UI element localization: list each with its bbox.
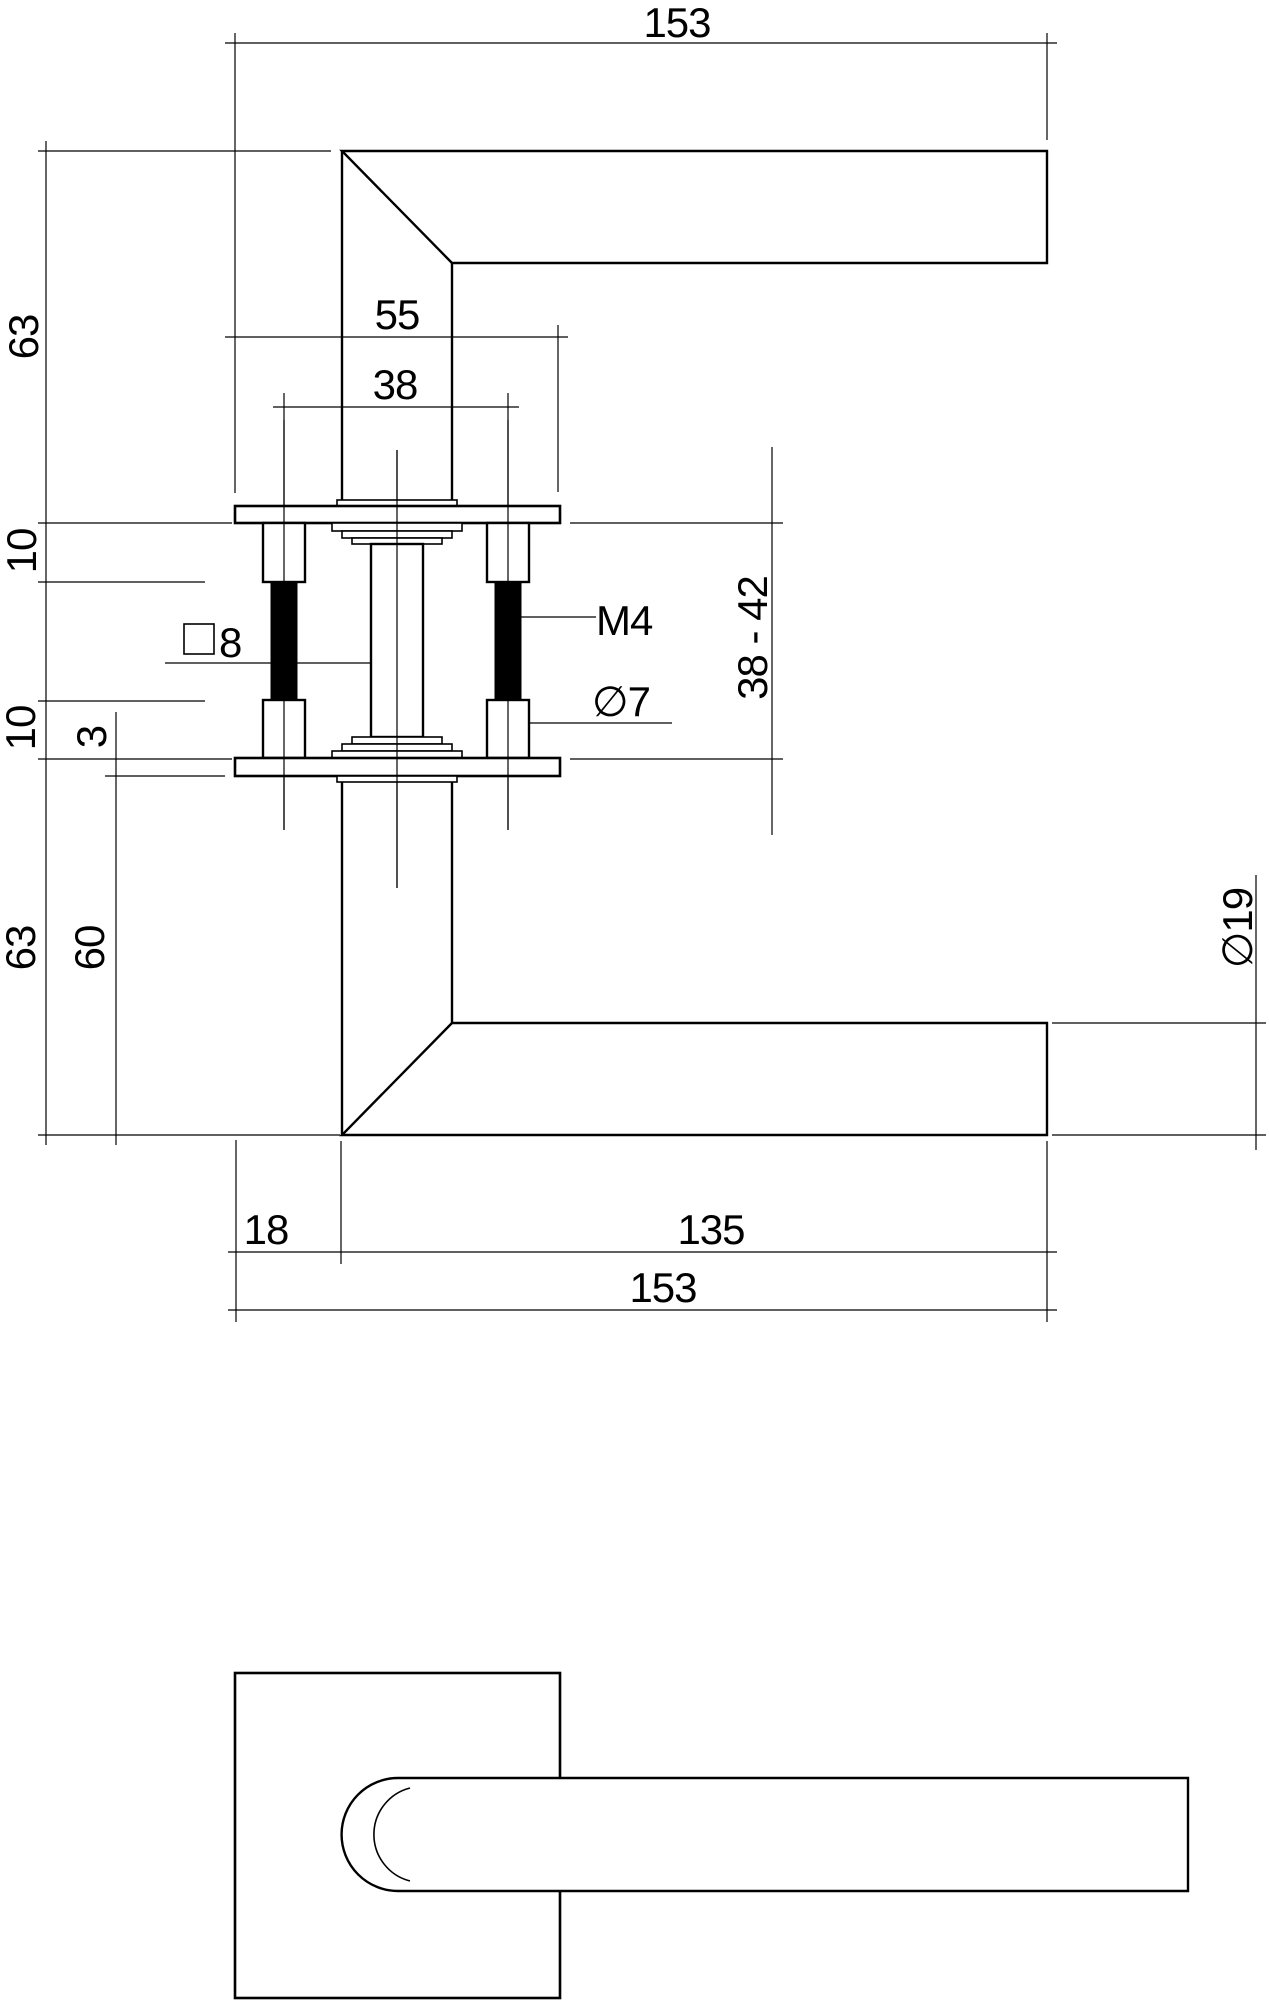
label-spindle-size: 8 — [219, 619, 241, 666]
label-upper-height: 63 — [0, 315, 47, 360]
front-lever-bar — [342, 1778, 1188, 1891]
drawing-page: 153 55 38 63 10 10 3 63 60 8 M4 ∅7 38 - … — [0, 0, 1269, 2000]
lower-grip-outline — [342, 1023, 1047, 1135]
label-lever-length: 135 — [677, 1206, 744, 1253]
label-rose-width: 55 — [375, 291, 420, 338]
label-bottom-total-length: 153 — [629, 1264, 696, 1311]
label-lower-bush: 10 — [0, 706, 44, 751]
square-spindle-icon — [184, 624, 214, 654]
label-top-total-length: 153 — [643, 0, 710, 46]
label-lower-height-inner: 60 — [66, 926, 113, 971]
label-rose-thickness: 3 — [68, 726, 115, 748]
label-lower-height: 63 — [0, 926, 44, 971]
label-screw-hole-dia: ∅7 — [592, 678, 650, 725]
label-door-thickness-range: 38 - 42 — [729, 576, 776, 700]
label-thread-size: M4 — [596, 597, 653, 644]
side-view-upper-lever — [235, 151, 1047, 737]
door-handle-technical-drawing: 153 55 38 63 10 10 3 63 60 8 M4 ∅7 38 - … — [0, 0, 1269, 2000]
label-hole-spacing: 38 — [373, 361, 418, 408]
label-grip-dia: ∅19 — [1214, 888, 1261, 968]
front-view — [235, 1673, 1188, 1998]
side-view-lower-lever — [235, 737, 1047, 1135]
label-neck-offset: 18 — [244, 1206, 289, 1253]
upper-grip-outline — [342, 151, 1047, 263]
label-upper-bush: 10 — [0, 529, 45, 574]
